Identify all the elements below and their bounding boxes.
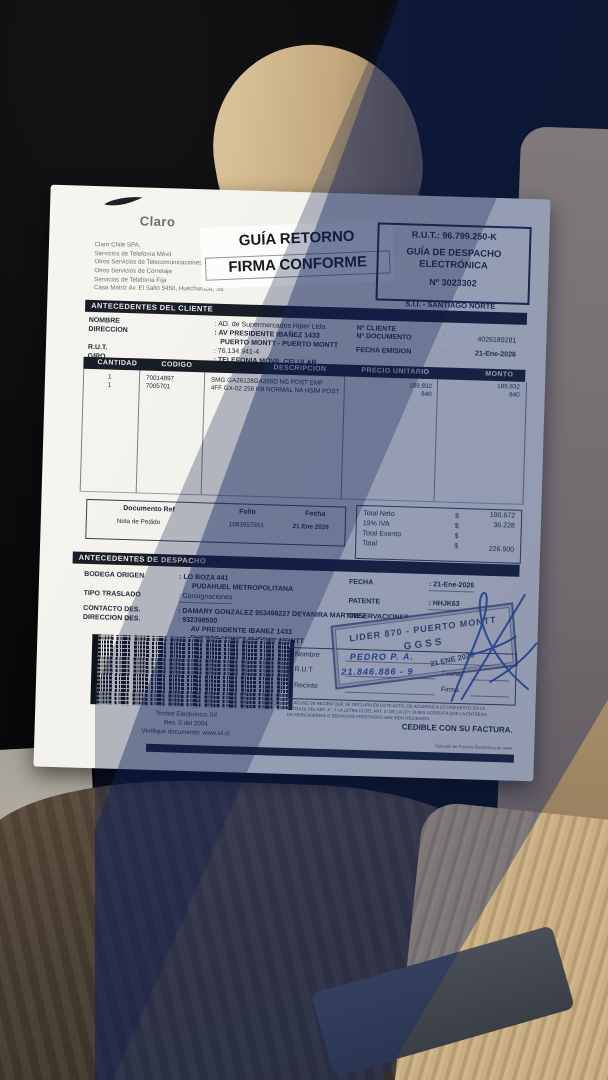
exento-value — [457, 533, 515, 535]
n-documento-value: 4026189281 — [446, 336, 516, 347]
bodega-value1: : LO BOZA 441 — [179, 574, 228, 584]
client-rut-label: R.U.T. — [88, 344, 108, 353]
col-cantidad: CANTIDAD — [97, 359, 137, 369]
doc-ref-col1: Documento Ref — [123, 505, 175, 515]
col-precio: PRECIO UNITARIO — [361, 367, 429, 378]
claro-logo: Claro — [139, 213, 175, 230]
pen-mark-icon — [102, 194, 144, 209]
patente-label: PATENTE — [348, 598, 380, 608]
column-divider — [201, 372, 206, 494]
return-stamp-line1: GUÍA RETORNO — [204, 226, 390, 252]
recinto-line — [345, 692, 435, 696]
pdf417-barcode — [90, 634, 294, 710]
direccion-des-label: DIRECCION DES. — [83, 614, 141, 624]
item-row-codigo: 7005701 — [146, 383, 171, 392]
receiver-recinto-label: Recinto — [294, 682, 318, 691]
doc-ref-val2: 1083957551 — [229, 521, 264, 530]
total-neto-value: 190.672 — [457, 511, 515, 521]
signature-scribble — [433, 584, 541, 709]
n-documento-label: Nº DOCUMENTO — [356, 333, 412, 343]
iva-label: 19% IVA — [363, 520, 390, 530]
bodega-label: BODEGA ORIGEN — [84, 571, 144, 582]
client-colon: : — [442, 331, 444, 340]
receiver-nombre-label: Nombre — [295, 651, 320, 660]
column-divider — [136, 370, 141, 492]
doc-ref-box: Documento Ref Folio Fecha Nota de Pedido… — [85, 499, 346, 547]
fecha-emision-value: 21-Ene-2026 — [446, 350, 516, 361]
guia-despacho-document: Claro Claro Chile SPA, Servicios de Tele… — [33, 185, 550, 782]
fecha-emision-label: FECHA EMISION — [356, 347, 412, 357]
rut-box: R.U.T.: 96.799.250-K GUÍA DE DESPACHO EL… — [375, 222, 531, 305]
return-stamp-line2: FIRMA CONFORME — [205, 250, 391, 280]
doc-ref-col3: Fecha — [305, 510, 325, 519]
item-row-cantidad: 1 — [108, 381, 112, 389]
tipo-label: TIPO TRASLADO — [83, 590, 140, 600]
currency-sign: $ — [454, 533, 458, 542]
total-label: Total — [362, 540, 377, 549]
iva-value: 36.228 — [457, 521, 515, 531]
doc-ref-col2: Folio — [239, 508, 256, 517]
issuer-rut: R.U.T.: 96.799.250-K — [379, 228, 529, 244]
return-stamp: GUÍA RETORNO FIRMA CONFORME — [200, 220, 395, 288]
doc-number: Nº 3023302 — [378, 275, 528, 291]
totals-box: Total Neto $ 190.672 19% IVA $ 36.228 To… — [355, 505, 523, 564]
items-table-body: 1 70014897 SMG GA26128GA266D NG POST EMP… — [80, 369, 527, 505]
provider-footnote: Solución de Factura Electrónica de www — [354, 741, 512, 751]
photo-of-delivery-document: Claro Claro Chile SPA, Servicios de Tele… — [0, 0, 608, 1080]
client-direccion-label: DIRECCION — [88, 326, 128, 336]
item-row-cantidad: 1 — [108, 373, 112, 381]
doc-ref-val3: 21 Ene 2026 — [293, 523, 329, 532]
receiver-rut-label: R.U.T — [294, 666, 313, 675]
total-neto-label: Total Neto — [363, 510, 395, 520]
col-monto: MONTO — [485, 371, 513, 381]
item-row-precio: 840 — [364, 389, 432, 399]
total-value: 226.900 — [456, 545, 514, 555]
timbre-block: Timbre Electrónico SII Res. 0 del 2004 V… — [89, 708, 282, 740]
col-descripcion: DESCRIPCION — [273, 364, 326, 374]
exento-label: Total Exento — [362, 530, 401, 540]
direccion-des-value1: : 932398500 — [178, 617, 218, 627]
fecha-despacho-label: FECHA — [349, 579, 373, 588]
column-divider — [341, 377, 346, 499]
item-row-monto: 840 — [454, 390, 520, 400]
column-divider — [434, 379, 439, 501]
client-colon2: : — [442, 349, 444, 358]
tipo-value: : Consignaciones — [178, 593, 232, 604]
col-codigo: CODIGO — [161, 361, 192, 371]
doc-ref-val1: Nota de Pedido — [117, 518, 161, 527]
